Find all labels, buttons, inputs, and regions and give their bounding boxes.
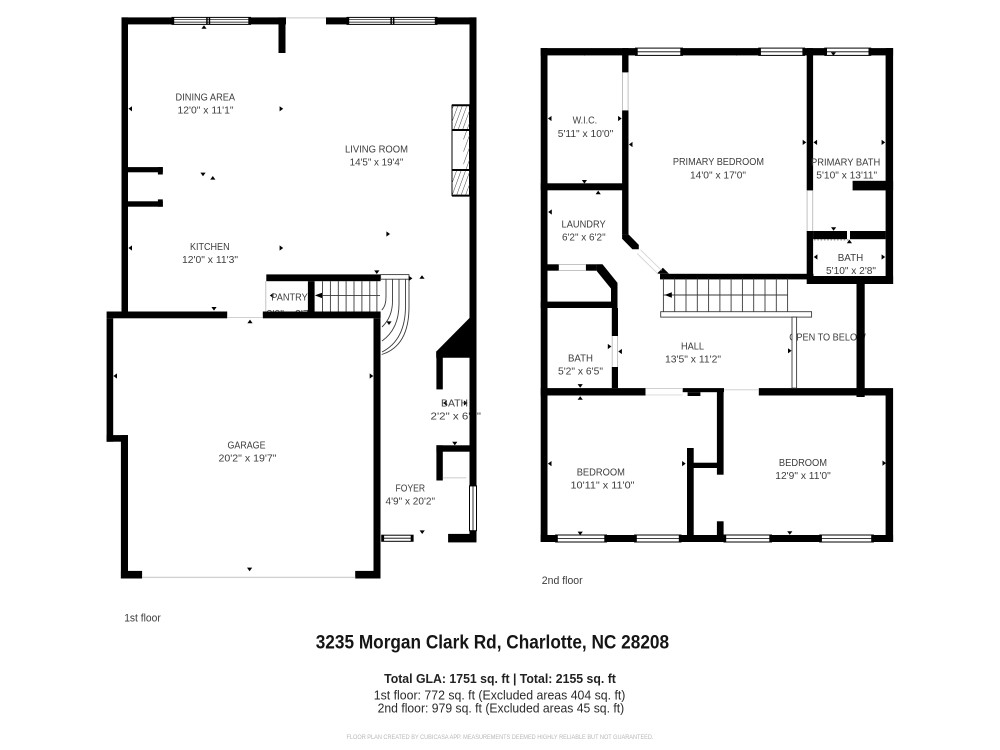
svg-text:GARAGE: GARAGE (228, 440, 266, 452)
svg-text:10'11" x 11'0": 10'11" x 11'0" (571, 480, 635, 492)
svg-text:KITCHEN: KITCHEN (190, 241, 230, 253)
svg-text:OPEN TO BELOW: OPEN TO BELOW (789, 333, 866, 344)
svg-text:14'5" x 19'4": 14'5" x 19'4" (350, 157, 404, 169)
svg-text:14'0" x 17'0": 14'0" x 17'0" (690, 170, 746, 182)
svg-text:12'0" x 11'1": 12'0" x 11'1" (178, 105, 234, 117)
svg-text:3235 Morgan Clark Rd, Charlott: 3235 Morgan Clark Rd, Charlotte, NC 2820… (316, 632, 669, 654)
svg-text:5'11" x 10'0": 5'11" x 10'0" (558, 128, 614, 140)
svg-text:DINING AREA: DINING AREA (176, 92, 236, 104)
svg-text:12'0" x 11'3": 12'0" x 11'3" (182, 254, 238, 266)
svg-text:BATH: BATH (838, 252, 864, 264)
svg-text:HALL: HALL (681, 341, 704, 353)
svg-text:20'2" x 19'7": 20'2" x 19'7" (219, 453, 277, 465)
svg-text:5'2" x 6'5": 5'2" x 6'5" (558, 366, 603, 378)
svg-text:2nd floor: 979 sq. ft (Exclude: 2nd floor: 979 sq. ft (Excluded areas 45… (378, 700, 625, 715)
svg-text:PANTRY: PANTRY (271, 292, 308, 303)
svg-text:5'10" x 2'8": 5'10" x 2'8" (826, 265, 876, 277)
svg-text:Total GLA: 1751 sq. ft | Total: Total GLA: 1751 sq. ft | Total: 2155 sq.… (384, 671, 617, 686)
svg-text:FLOOR PLAN CREATED BY CUBICASA: FLOOR PLAN CREATED BY CUBICASA APP. MEAS… (347, 734, 654, 741)
svg-text:2nd floor: 2nd floor (542, 575, 583, 587)
svg-text:PRIMARY BATH: PRIMARY BATH (811, 157, 880, 169)
svg-text:LIVING ROOM: LIVING ROOM (345, 144, 408, 156)
svg-text:LAUNDRY: LAUNDRY (562, 219, 606, 231)
svg-text:W.I.C.: W.I.C. (573, 115, 598, 127)
svg-text:4'9" x 20'2": 4'9" x 20'2" (386, 496, 436, 508)
svg-text:6'2" x 6'2": 6'2" x 6'2" (562, 232, 606, 244)
svg-text:BEDROOM: BEDROOM (577, 467, 625, 479)
svg-text:BATH: BATH (441, 397, 468, 409)
svg-text:BATH: BATH (568, 353, 593, 365)
svg-text:FOYER: FOYER (396, 483, 426, 495)
svg-text:PRIMARY BEDROOM: PRIMARY BEDROOM (673, 156, 764, 168)
svg-text:12'9" x 11'0": 12'9" x 11'0" (775, 470, 831, 482)
svg-text:13'5" x 11'2": 13'5" x 11'2" (665, 354, 721, 366)
svg-text:1st floor: 1st floor (124, 613, 161, 625)
svg-text:BEDROOM: BEDROOM (779, 457, 827, 469)
svg-text:5'10" x 13'11": 5'10" x 13'11" (816, 170, 877, 182)
